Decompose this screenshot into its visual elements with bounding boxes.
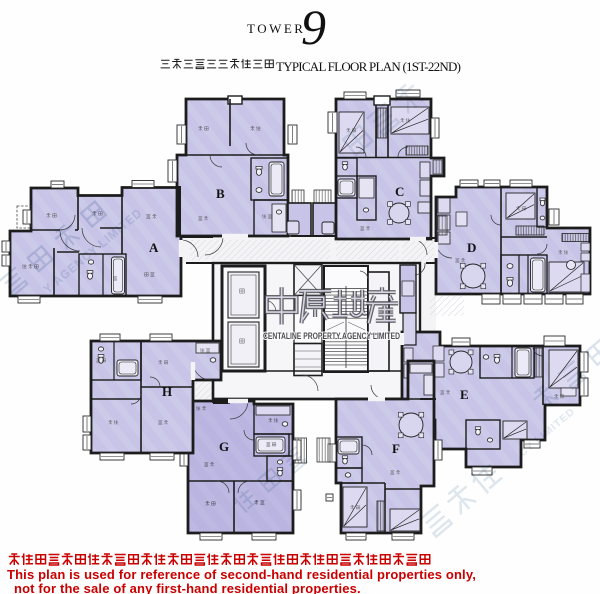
svg-text:E: E xyxy=(460,387,469,402)
svg-text:A: A xyxy=(149,240,159,255)
svg-text:B: B xyxy=(216,186,225,201)
svg-text:D: D xyxy=(467,240,476,255)
svg-text:CENTALINE PROPERTY AGENCY LIMI: CENTALINE PROPERTY AGENCY LIMITED xyxy=(263,331,400,342)
svg-text:C: C xyxy=(395,184,404,199)
svg-text:F: F xyxy=(392,441,400,456)
svg-text:H: H xyxy=(162,384,172,399)
svg-text:G: G xyxy=(219,439,229,454)
